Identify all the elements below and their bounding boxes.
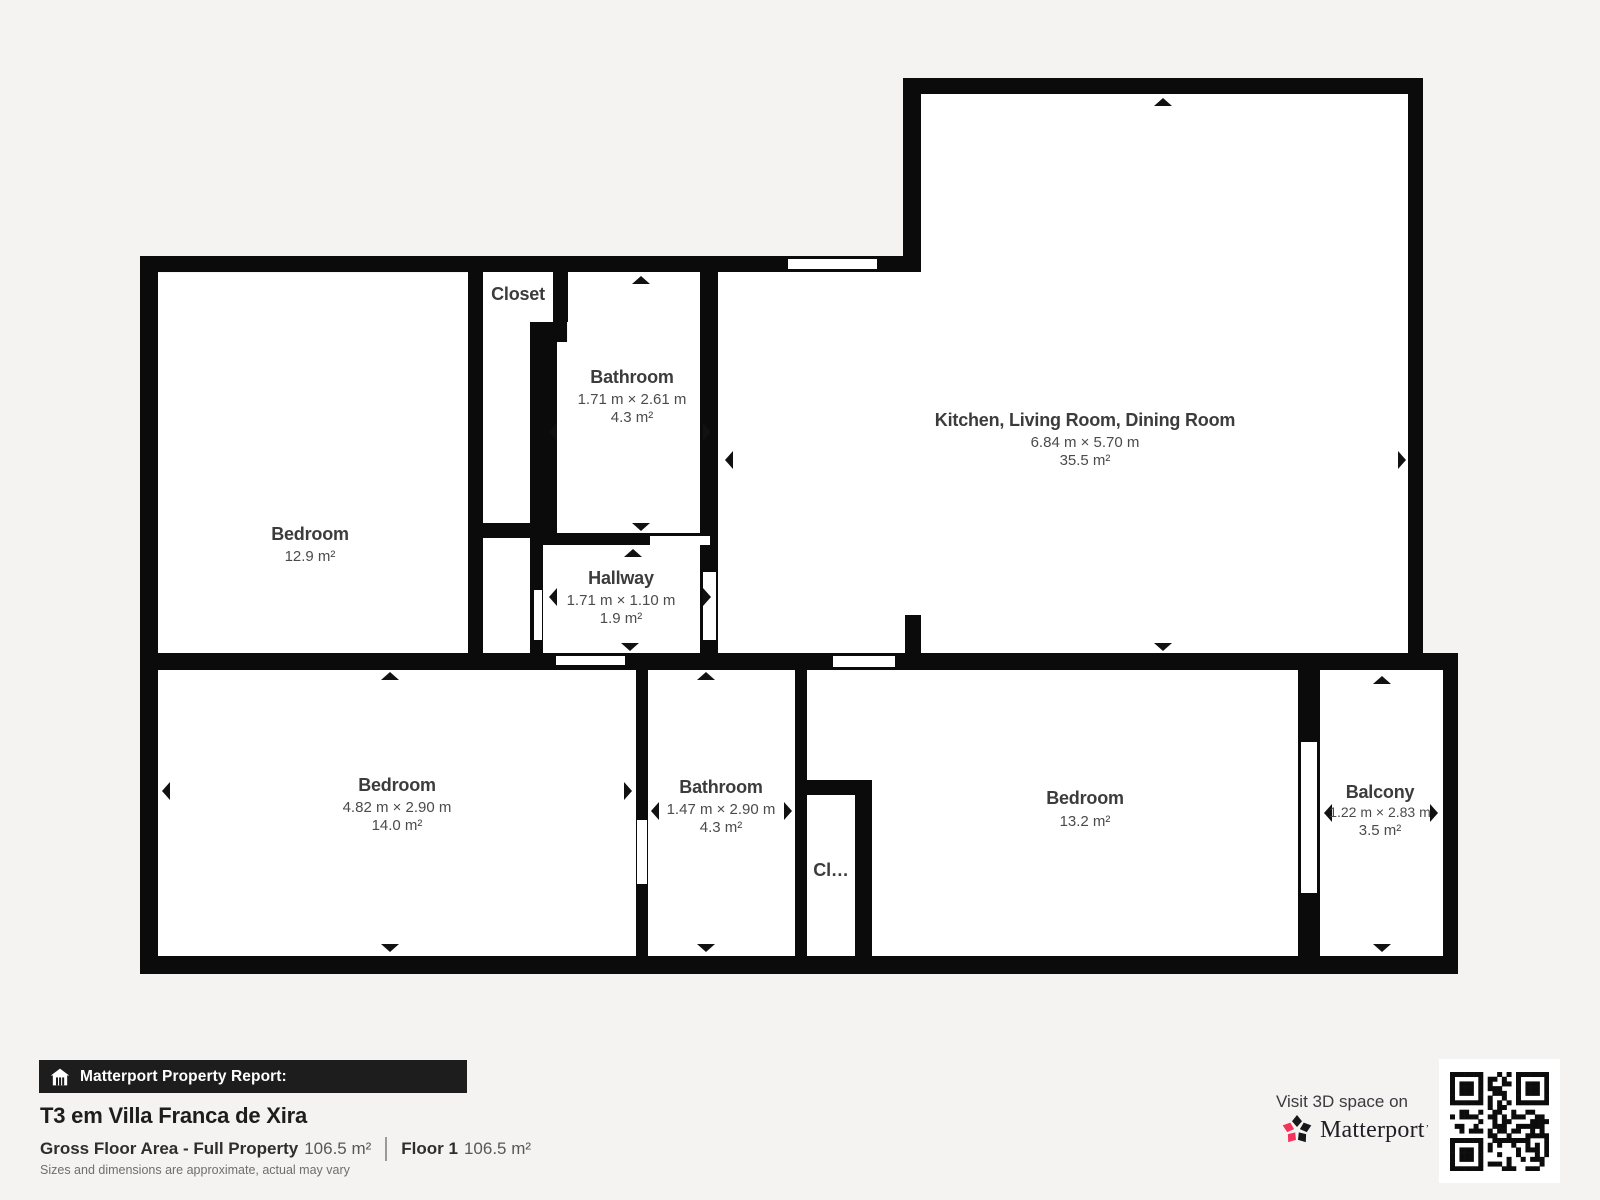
room-area: 3.5 m² [1359, 822, 1402, 839]
report-bar-label: Matterport Property Report: [80, 1068, 287, 1086]
room-dims: 1.71 m × 1.10 m [567, 592, 676, 609]
qr-card [1439, 1059, 1560, 1183]
room-bedroom-topleft [158, 273, 468, 653]
bathroom-top-door-opening [650, 536, 710, 545]
room-label: Bedroom [358, 775, 436, 795]
entry-door-opening [788, 259, 877, 269]
floor-plan: Bedroom 12.9 m² Closet Bathroom 1.71 m ×… [0, 0, 1600, 1200]
matterport-logo: Matterport ’ [1281, 1114, 1429, 1146]
room-label: Cl… [813, 860, 848, 880]
room-label: Bathroom [679, 777, 762, 797]
room-dims: 1.47 m × 2.90 m [667, 801, 776, 818]
room-label: Closet [491, 284, 545, 304]
room-area: 4.3 m² [700, 819, 743, 836]
room-label: Kitchen, Living Room, Dining Room [935, 410, 1235, 430]
bedroom-bl-door-opening [637, 820, 647, 884]
divider [385, 1137, 387, 1161]
room-bedroom-bottomright [807, 670, 1298, 956]
floor-label: Floor 1 [401, 1139, 458, 1159]
trademark-mark: ’ [1426, 1125, 1429, 1135]
report-title-bar: Matterport Property Report: [39, 1060, 467, 1093]
room-label: Hallway [588, 568, 654, 588]
floor-plan-report: Bedroom 12.9 m² Closet Bathroom 1.71 m ×… [0, 0, 1600, 1200]
room-label: Bedroom [1046, 788, 1124, 808]
floor-area-row: Gross Floor Area - Full Property 106.5 m… [40, 1136, 531, 1162]
room-label: Bathroom [590, 367, 673, 387]
balcony-door-opening [1301, 742, 1317, 893]
visit-3d-space-text: Visit 3D space on [1262, 1092, 1422, 1112]
room-label: Bedroom [271, 524, 349, 544]
qr-code [1450, 1072, 1549, 1171]
gfa-value: 106.5 m² [304, 1139, 371, 1159]
hallway-bottom-opening [556, 656, 625, 665]
matterport-pinwheel-icon [1281, 1114, 1313, 1146]
bedroom-br-door-opening [833, 656, 895, 667]
room-dims: 1.22 m × 2.83 m [1329, 804, 1431, 820]
matterport-wordmark: Matterport [1320, 1117, 1425, 1144]
room-area: 12.9 m² [285, 548, 336, 565]
house-icon [50, 1067, 70, 1087]
gfa-label: Gross Floor Area - Full Property [40, 1139, 298, 1159]
room-dims: 6.84 m × 5.70 m [1031, 434, 1140, 451]
disclaimer-text: Sizes and dimensions are approximate, ac… [40, 1163, 350, 1177]
hallway-left-door-opening [534, 590, 542, 640]
room-area: 35.5 m² [1060, 452, 1111, 469]
property-title: T3 em Villa Franca de Xira [40, 1103, 307, 1129]
hallway-right-door-opening [703, 572, 716, 640]
room-kitchen-living-dining [718, 94, 1408, 653]
room-label: Balcony [1346, 782, 1415, 802]
room-bedroom-topleft-nook [483, 538, 530, 653]
floor-value: 106.5 m² [464, 1139, 531, 1159]
room-area: 1.9 m² [600, 610, 643, 627]
room-dims: 1.71 m × 2.61 m [578, 391, 687, 408]
room-area: 13.2 m² [1060, 813, 1111, 830]
room-area: 14.0 m² [372, 817, 423, 834]
room-area: 4.3 m² [611, 409, 654, 426]
room-dims: 4.82 m × 2.90 m [343, 799, 452, 816]
